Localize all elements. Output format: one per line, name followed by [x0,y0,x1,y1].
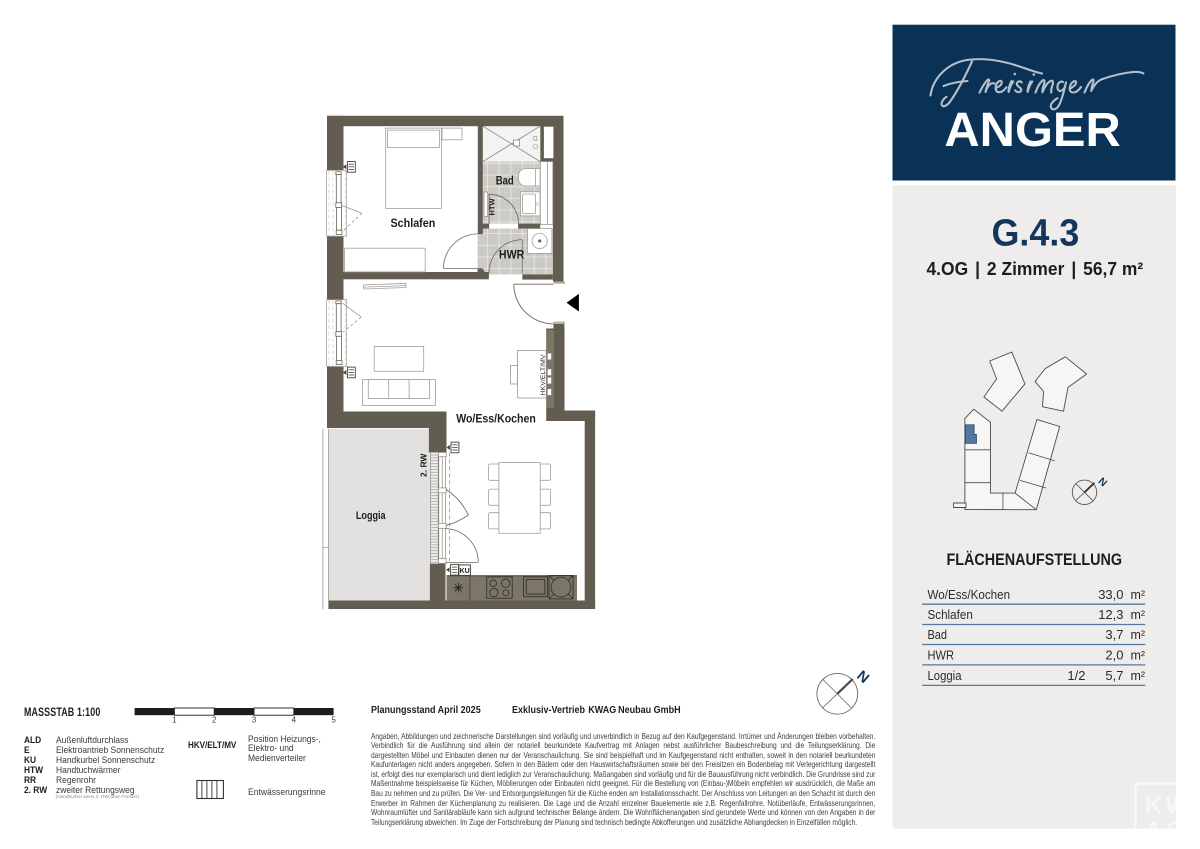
svg-text:HTW: HTW [488,198,497,216]
svg-text:KW: KW [1145,793,1192,820]
svg-text:Loggia: Loggia [356,510,386,522]
svg-text:2: 2 [212,716,217,725]
svg-text:m²: m² [1131,628,1146,642]
svg-text:HWR: HWR [928,648,955,663]
svg-text:33,0: 33,0 [1098,587,1123,602]
svg-text:4.OG | 2 Zimmer | 56,7 m²: 4.OG | 2 Zimmer | 56,7 m² [927,259,1144,279]
svg-text:Wo/Ess/Kochen: Wo/Ess/Kochen [928,587,1011,602]
svg-text:12,3: 12,3 [1098,607,1123,622]
svg-text:HWR: HWR [499,250,525,262]
svg-text:Bad: Bad [928,627,948,642]
svg-text:Loggia: Loggia [928,668,963,683]
svg-text:HKV/ELT/MV: HKV/ELT/MV [540,354,547,396]
svg-text:Schlafen: Schlafen [391,218,436,230]
svg-text:ANGER: ANGER [944,104,1120,157]
svg-text:m²: m² [1131,649,1146,663]
svg-text:m²: m² [1131,588,1146,602]
svg-text:2. RW: 2. RW [419,453,429,477]
svg-text:3,7: 3,7 [1105,627,1123,642]
svg-text:G.4.3: G.4.3 [992,212,1080,254]
svg-text:2,0: 2,0 [1105,648,1123,663]
svg-text:3: 3 [252,716,257,725]
svg-text:m²: m² [1131,669,1146,683]
svg-text:Bad: Bad [496,176,514,188]
svg-text:AG: AG [1145,818,1188,845]
svg-text:FLÄCHENAUFSTELLUNG: FLÄCHENAUFSTELLUNG [947,551,1123,569]
svg-text:N: N [853,668,871,687]
svg-text:4: 4 [292,716,297,725]
svg-text:m²: m² [1131,608,1146,622]
svg-text:KU: KU [460,568,470,575]
svg-text:5: 5 [331,716,336,725]
svg-text:Schlafen: Schlafen [928,607,973,622]
svg-text:1/2: 1/2 [1067,668,1085,683]
svg-text:Wo/Ess/Kochen: Wo/Ess/Kochen [456,414,536,426]
svg-text:1: 1 [172,716,177,725]
svg-text:5,7: 5,7 [1105,668,1123,683]
